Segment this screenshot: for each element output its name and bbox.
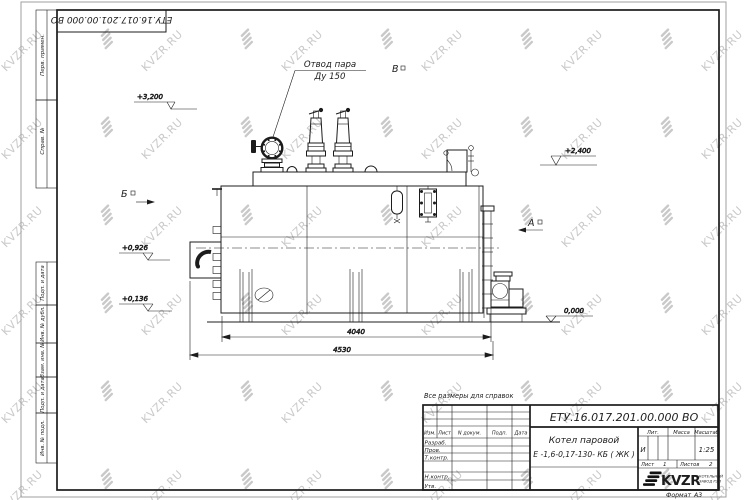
row-prov: Пров. — [425, 448, 441, 454]
list-value: 1 — [663, 462, 667, 468]
row-tkontr: Т.контр. — [425, 456, 449, 462]
elevation-0000-label: 0,000 — [564, 307, 585, 315]
dimension-4530-label: 4530 — [333, 346, 351, 354]
elevation-0136-label: +0,136 — [122, 295, 148, 303]
elevation-3200-label: +3,200 — [137, 93, 163, 101]
frame-label-podp-data-bottom: Подп. и дата — [40, 377, 46, 412]
frame-label-vzam-inv: Взам. инв. № — [40, 342, 46, 377]
frame-label-inv-dubl: Инв. № дубл. — [40, 306, 46, 342]
frame-label-podp-data-top: Подп. и дата — [40, 265, 46, 300]
product-name-line1: Котел паровой — [549, 436, 620, 446]
listov-value: 2 — [709, 462, 713, 468]
listov-label: Листов — [679, 462, 699, 468]
row-utv: Утв. — [425, 484, 437, 490]
frame-label-perv-primen: Перв. примен. — [40, 34, 46, 76]
row-razrab: Разраб. — [425, 441, 447, 447]
col-ndokum: N докум. — [458, 431, 481, 437]
reference-note: Все размеры для справок — [424, 392, 513, 400]
steam-outlet-label-line1: Отвод пара — [304, 60, 356, 70]
masshtab-value: 1:25 — [699, 446, 715, 454]
elevation-2400-label: +2,400 — [565, 147, 591, 155]
masshtab-label: Масштаб — [694, 430, 719, 436]
view-b-label: Б — [121, 189, 128, 200]
corner-stamp-doc-number: ЕТУ.16.017.201.00.000 ВО — [51, 14, 173, 24]
drawing-sheet: KVZR.RU Перв. примен. Справ. № Подп. и д… — [0, 0, 750, 500]
lit-label: Лит. — [646, 430, 659, 436]
row-nkontr: Н.контр. — [425, 475, 450, 481]
title-doc-number: ЕТУ.16.017.201.00.000 ВО — [550, 411, 699, 424]
company-logo-sub1: КОТЕЛЬНЫЙ — [699, 474, 723, 479]
product-name-line2: Е -1,6-0,17-130- КБ ( ЖК ) — [533, 450, 634, 459]
steam-outlet-label-line2: Ду 150 — [314, 72, 346, 82]
view-a-label: А — [527, 218, 535, 229]
elevation-0926-label: +0,926 — [122, 244, 148, 252]
company-logo-text: KVZR — [661, 473, 701, 489]
format-value: А3 — [693, 492, 702, 499]
col-podp: Подп. — [492, 431, 507, 437]
dimension-4040-label: 4040 — [347, 328, 365, 336]
watermark-layer — [0, 0, 750, 500]
view-v-label: В — [392, 64, 399, 75]
frame-label-sprav-no: Справ. № — [40, 127, 46, 154]
format-label: Формат — [666, 492, 691, 499]
list-label: Лист — [640, 462, 655, 468]
company-logo-sub2: ЗАВОД РЭП — [699, 480, 721, 484]
col-izm: Изм. — [424, 431, 436, 437]
massa-label: Масса — [673, 430, 690, 436]
lit-value: И — [640, 446, 646, 454]
col-list: Лист — [437, 431, 452, 437]
col-data: Дата — [514, 431, 528, 437]
frame-label-inv-podl: Инв. № подл. — [40, 420, 46, 456]
